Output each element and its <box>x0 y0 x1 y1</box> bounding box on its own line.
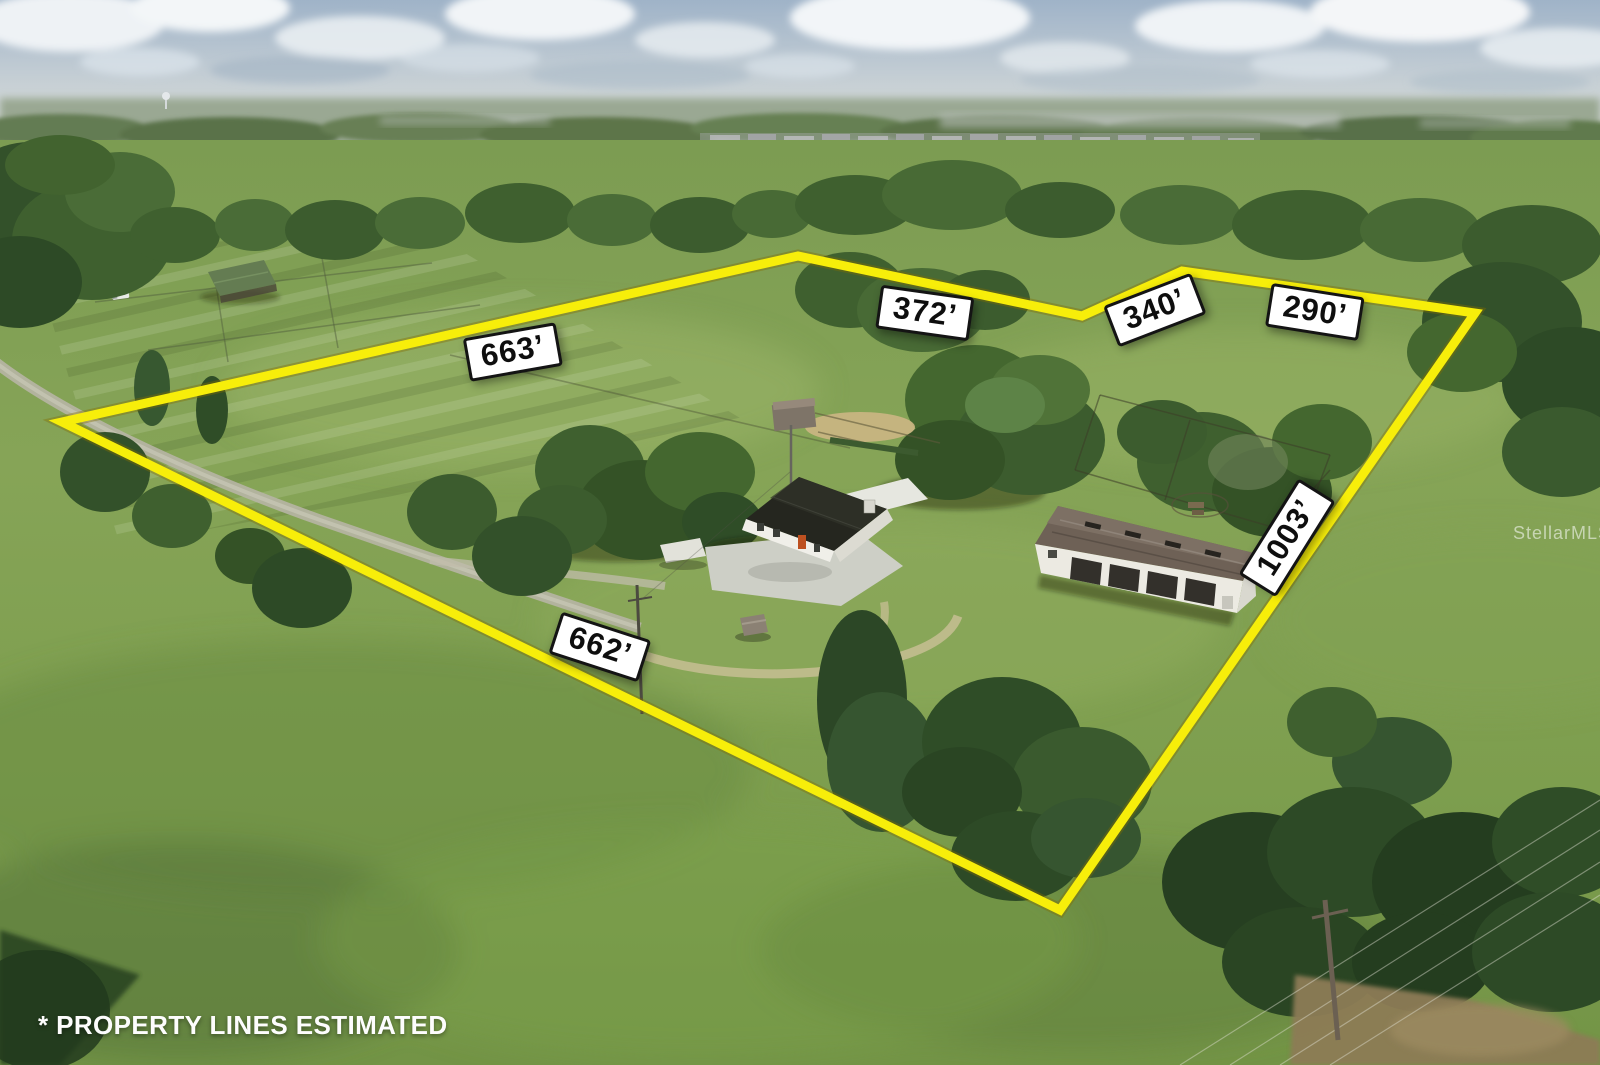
aerial-photo-canvas <box>0 0 1600 1065</box>
front-door <box>798 535 806 549</box>
aerial-property-photo: 663’ 372’ 340’ 290’ 1003’ 662’ StellarML… <box>0 0 1600 1065</box>
stellar-mls-watermark: StellarMLS <box>1513 523 1600 544</box>
chimney <box>864 500 875 513</box>
property-lines-disclaimer: * PROPERTY LINES ESTIMATED <box>38 1010 448 1041</box>
distant-buildings <box>940 114 1340 128</box>
wood-ramp <box>1188 502 1204 508</box>
